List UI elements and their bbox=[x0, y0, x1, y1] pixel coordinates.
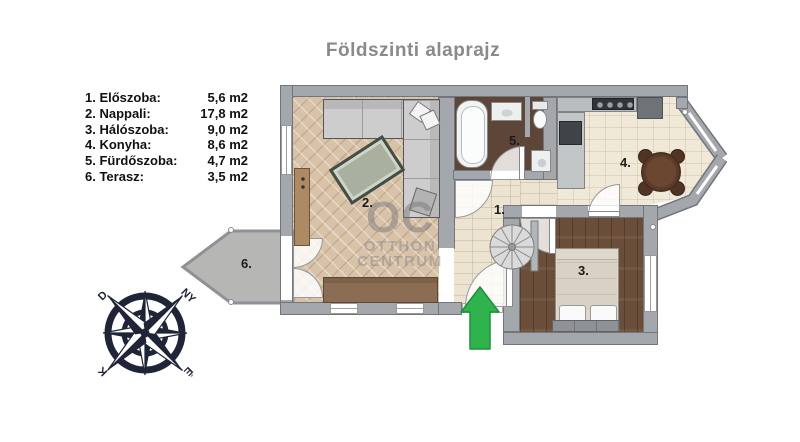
corner-markers bbox=[229, 110, 688, 305]
entrance-arrow-icon bbox=[461, 287, 499, 349]
floor-plan-canvas: Földszinti alaprajz 1. Előszoba: 5,6 m2 … bbox=[0, 0, 800, 442]
compass-label-east: K bbox=[96, 364, 110, 378]
spiral-staircase bbox=[490, 221, 538, 271]
compass-label-south: D bbox=[96, 289, 110, 303]
compass-label-west: NY bbox=[178, 286, 198, 306]
overlay-graphics: D NY K É bbox=[0, 0, 800, 442]
compass-label-north: É bbox=[181, 364, 195, 378]
compass-rose-icon: D NY K É bbox=[96, 286, 198, 378]
